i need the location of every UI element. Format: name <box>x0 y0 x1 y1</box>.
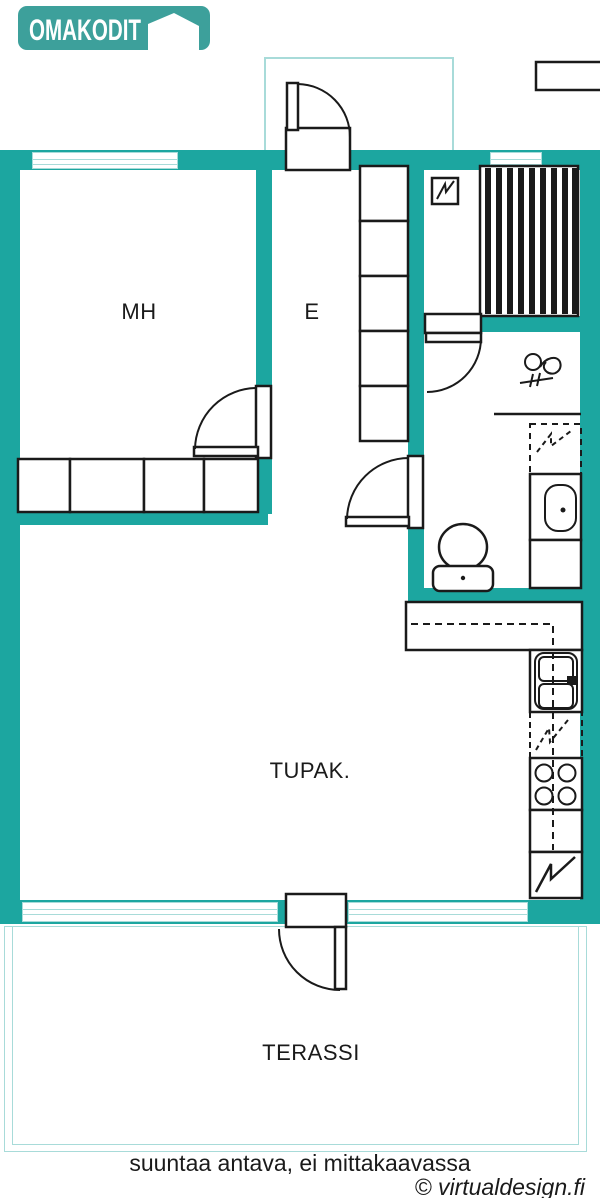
entrance-door <box>286 83 350 170</box>
washbasin-icon <box>530 474 581 540</box>
washroom-door <box>346 456 423 528</box>
credit-text: © virtualdesign.fi <box>0 1174 585 1198</box>
dishwasher-icon <box>530 712 582 758</box>
room-label-tupak: TUPAK. <box>270 758 351 784</box>
terrace-door <box>279 894 346 990</box>
room-label-terassi: TERASSI <box>262 1040 360 1066</box>
fridge-icon <box>530 852 582 898</box>
exterior-structure <box>536 62 600 90</box>
mh-wardrobe <box>18 459 258 512</box>
washroom-cabinet <box>530 540 581 588</box>
hall-closets <box>360 166 408 441</box>
plan-linework <box>0 0 600 1198</box>
room-label-e: E <box>304 299 319 325</box>
mh-door <box>194 386 271 458</box>
toilet-icon <box>433 524 493 591</box>
logo-brand-text: OMAKODIT <box>29 14 141 47</box>
omakodit-logo: OMAKODIT <box>14 2 214 54</box>
kitchen-counter <box>406 602 582 650</box>
stove-icon <box>530 758 582 810</box>
sauna-heater-icon <box>432 178 458 204</box>
shower-icon <box>520 354 561 387</box>
room-label-mh: MH <box>121 299 156 325</box>
sauna-benches <box>480 166 578 316</box>
kitchen-sink-icon <box>530 650 582 712</box>
shower-area <box>530 424 581 474</box>
disclaimer-text: suuntaa antava, ei mittakaavassa <box>0 1150 600 1177</box>
floorplan-page: MH E TUPAK. TERASSI OMAKODIT suuntaa ant… <box>0 0 600 1198</box>
sauna-door <box>425 314 481 392</box>
kitchen-cabinet <box>530 810 582 852</box>
